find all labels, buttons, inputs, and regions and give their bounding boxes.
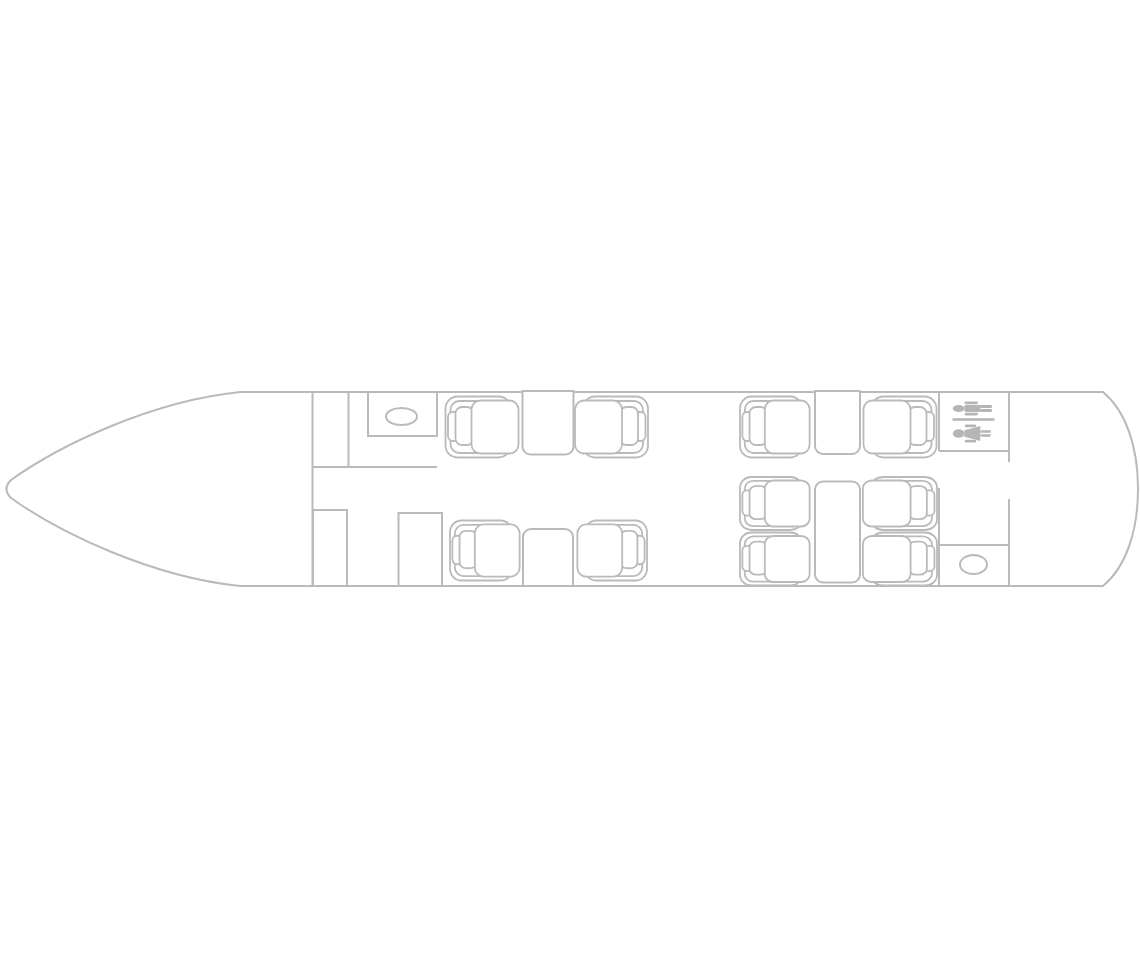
seat-cushion: [765, 480, 810, 526]
seat-5-right-facing: [740, 397, 810, 458]
wardrobe-forward-right: [399, 513, 443, 586]
aircraft-cabin-diagram: [0, 0, 1140, 980]
seat-cushion: [765, 536, 810, 582]
man-icon-leg-right: [980, 405, 993, 408]
seat-9-right-facing: [740, 533, 810, 586]
man-icon-torso: [964, 405, 980, 412]
seat-6-left-facing: [864, 397, 937, 458]
table-aft-conference: [815, 482, 860, 583]
wardrobe-forward-left: [313, 510, 347, 586]
seat-cushion: [575, 401, 622, 454]
table-forward-club-top: [523, 391, 574, 455]
seat-cushion: [765, 401, 810, 454]
seat-3-right-facing: [450, 521, 520, 581]
seat-2-left-facing: [575, 397, 648, 458]
woman-icon-head: [953, 429, 965, 438]
woman-icon-leg-left: [980, 434, 991, 437]
man-icon-leg-left: [980, 409, 993, 412]
seat-7-right-facing: [740, 477, 810, 530]
seat-4-left-facing: [577, 521, 647, 581]
seat-cushion: [864, 401, 911, 454]
seat-10-left-facing: [863, 533, 937, 586]
man-icon-arm-right: [964, 401, 978, 403]
seat-cushion: [475, 524, 520, 576]
cabin-floorplan-canvas: [0, 0, 1140, 980]
galley-sink: [386, 408, 417, 425]
woman-icon-arm-left: [965, 440, 976, 443]
man-icon-arm-left: [964, 413, 978, 415]
man-icon-head: [953, 405, 965, 412]
lavatory-toilet: [960, 555, 987, 574]
seat-cushion: [472, 401, 519, 454]
table-forward-club-bottom: [523, 529, 573, 586]
woman-icon-leg-right: [980, 430, 991, 433]
seat-cushion: [577, 524, 622, 576]
seat-1-right-facing: [446, 397, 519, 458]
seat-8-left-facing: [863, 477, 937, 530]
seat-cushion: [863, 536, 911, 582]
seat-cushion: [863, 480, 911, 526]
table-mid-club-top: [815, 391, 860, 454]
woman-icon-arm-right: [965, 425, 976, 428]
